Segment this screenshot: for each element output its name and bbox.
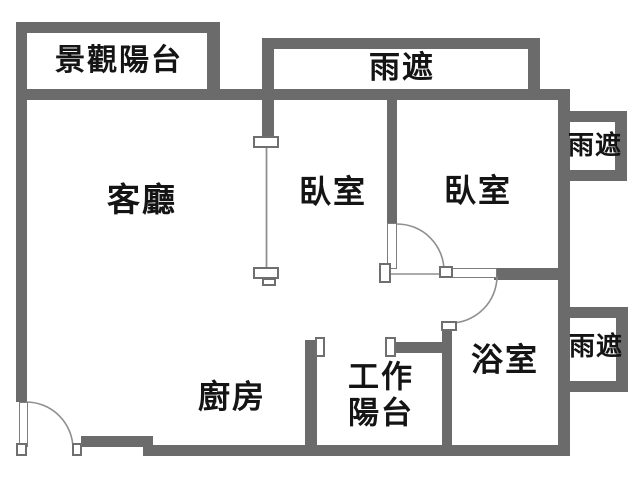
partition-post-top [253,136,279,148]
room-label-work-balcony-line2: 陽台 [348,395,414,431]
workbalcony-jamb-left [315,337,325,357]
room-label-rain-canopy-right-upper: 雨遮 [568,132,622,162]
front-door-arc [26,402,73,449]
bedroom2-door-jamb-hinge [379,263,391,283]
bathroom-door-leaf [451,268,497,278]
room-label-rain-canopy-right-lower: 雨遮 [569,333,623,363]
front-door-leaf [19,402,28,447]
room-label-rain-canopy-top: 雨遮 [369,51,435,87]
bedroom2-door-arc [397,224,444,271]
room-label-work-balcony-line1: 工作 [348,359,414,395]
partition-post-tab [262,278,276,286]
room-label-living-room: 客廳 [107,181,177,219]
bedroom2-door-jamb-latch [439,266,453,278]
workbalcony-jamb-right [385,337,396,357]
bathroom-door-jamb [441,321,457,331]
front-door-jamb-left [16,443,27,456]
bathroom-door-arc [450,276,497,323]
room-label-kitchen: 廚房 [198,379,266,416]
front-door-jamb-right [72,443,82,456]
room-label-view-balcony: 景觀陽台 [55,44,183,79]
room-label-work-balcony: 工作 陽台 [348,360,414,431]
floor-plan: 景觀陽台 雨遮 雨遮 雨遮 客廳 臥室 臥室 浴室 廚房 工作 陽台 [0,0,640,480]
room-label-bedroom-2: 臥室 [444,173,512,210]
room-label-bathroom: 浴室 [471,342,539,379]
room-label-bedroom-1: 臥室 [299,174,367,211]
